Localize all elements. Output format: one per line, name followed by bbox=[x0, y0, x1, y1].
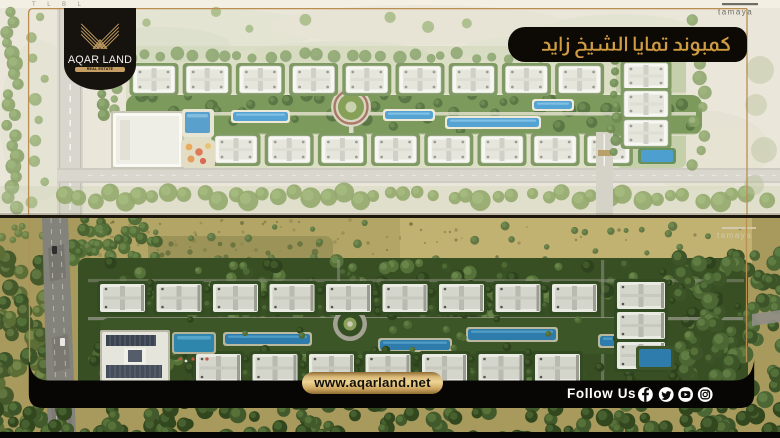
svg-text:tamaya: tamaya bbox=[718, 8, 753, 17]
